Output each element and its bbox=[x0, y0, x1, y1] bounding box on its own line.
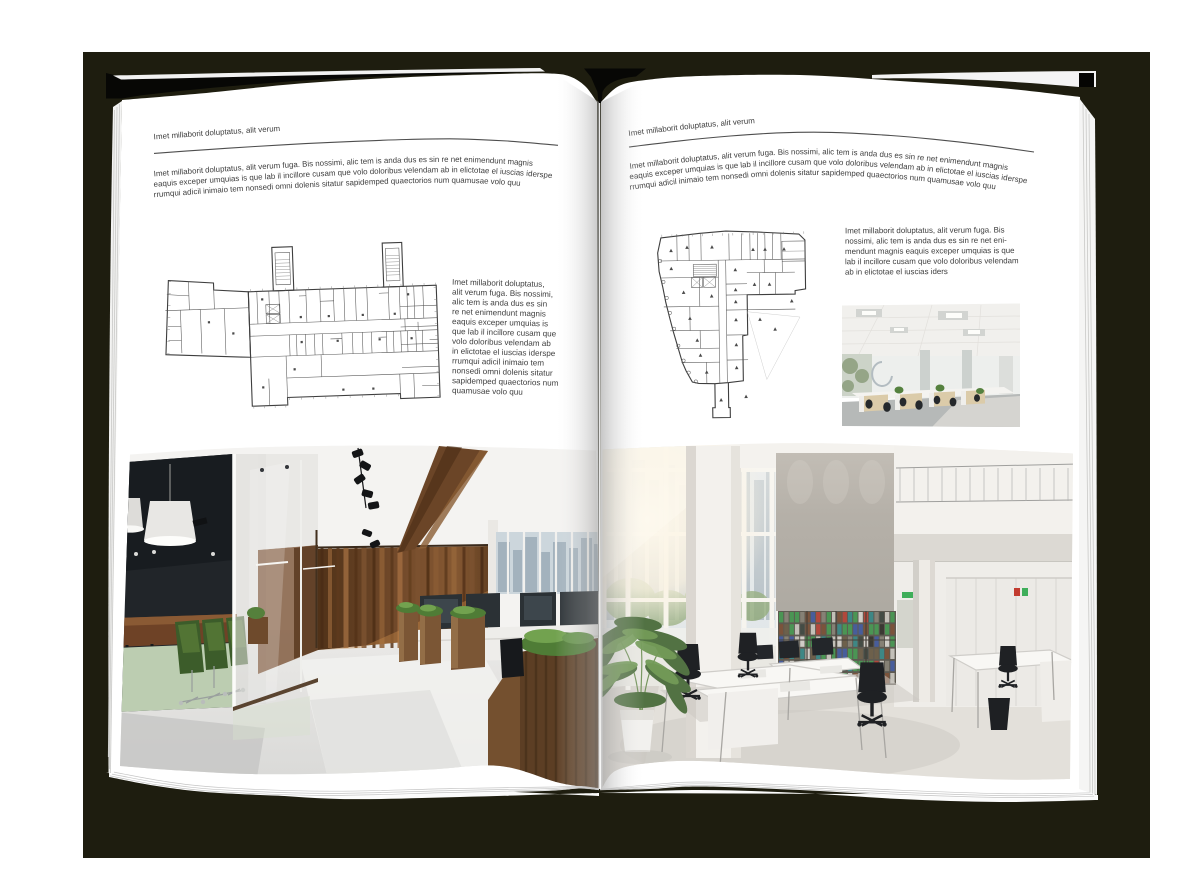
svg-text:ab in elictotae el iuscias ide: ab in elictotae el iuscias iders bbox=[845, 267, 948, 277]
svg-text:mendunt magnis eaquis exceper: mendunt magnis eaquis exceper umquias is… bbox=[845, 246, 1015, 256]
svg-text:nossimi, alic tem is anda dus: nossimi, alic tem is anda dus es sin re … bbox=[845, 236, 1007, 246]
svg-text:quamusae volo quu: quamusae volo quu bbox=[452, 386, 523, 397]
svg-text:Imet millaborit doluptatus, al: Imet millaborit doluptatus, alit verum f… bbox=[845, 225, 1005, 235]
svg-text:lab il incillore cusam que vol: lab il incillore cusam que volo doloribu… bbox=[845, 256, 1019, 266]
